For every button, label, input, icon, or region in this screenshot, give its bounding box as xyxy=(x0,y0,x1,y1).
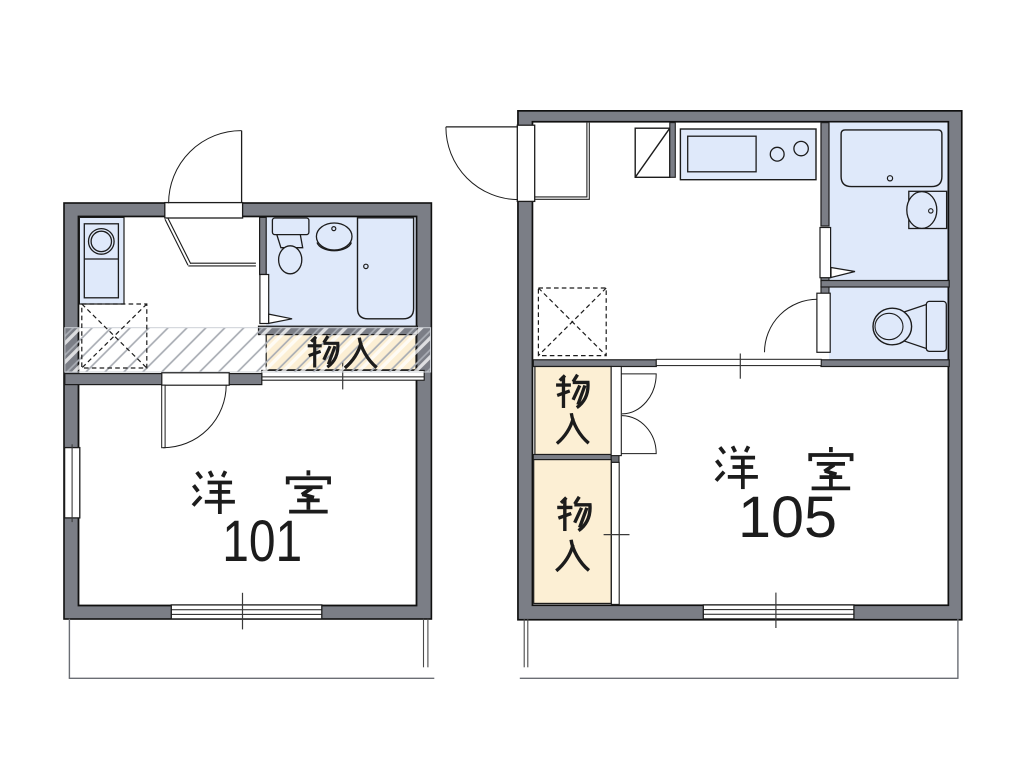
svg-text:101: 101 xyxy=(222,509,302,574)
svg-text:105: 105 xyxy=(738,485,837,550)
